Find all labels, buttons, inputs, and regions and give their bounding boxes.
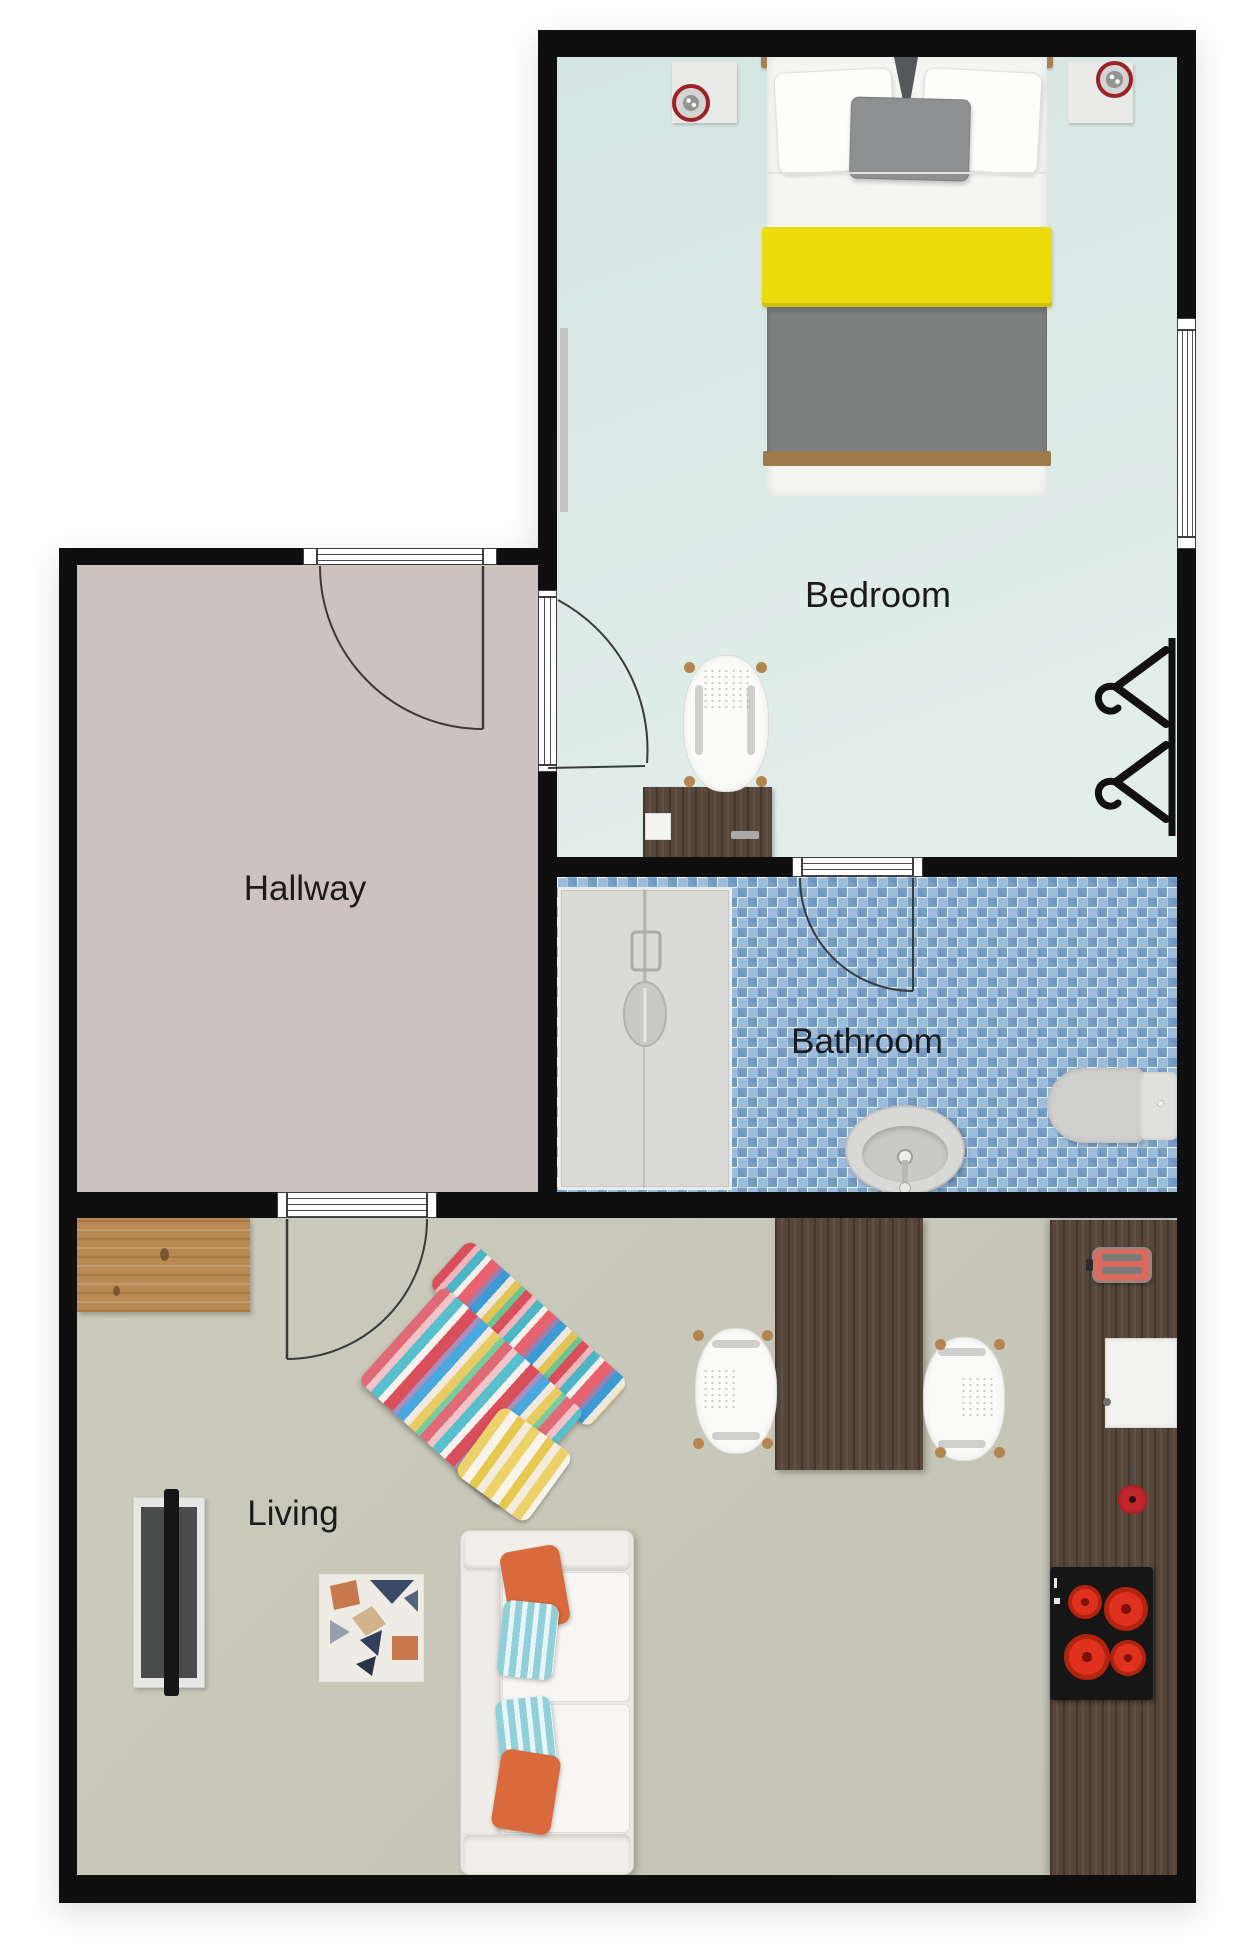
bedroom-door-arc xyxy=(558,600,648,763)
floor-plan-canvas: Bedroom Hallway Bathroom Living xyxy=(0,0,1255,1953)
hanger-icon xyxy=(1116,650,1166,724)
bathroom-label: Bathroom xyxy=(757,1022,977,1062)
floor-plan: Bedroom Hallway Bathroom Living xyxy=(0,0,1255,1953)
entry-door-arc xyxy=(320,566,483,729)
bedroom-label: Bedroom xyxy=(768,574,988,616)
living-door-arc xyxy=(287,1219,427,1359)
plan-line-overlay xyxy=(0,0,1255,1953)
hanger-hook xyxy=(1098,781,1118,806)
bathroom-door-arc xyxy=(800,878,913,991)
bedroom-door-open-leaf xyxy=(548,766,645,768)
living-label: Living xyxy=(183,1494,403,1534)
hallway-label: Hallway xyxy=(195,869,415,909)
hanger-hook xyxy=(1098,686,1118,711)
hanger-icon xyxy=(1116,745,1166,819)
